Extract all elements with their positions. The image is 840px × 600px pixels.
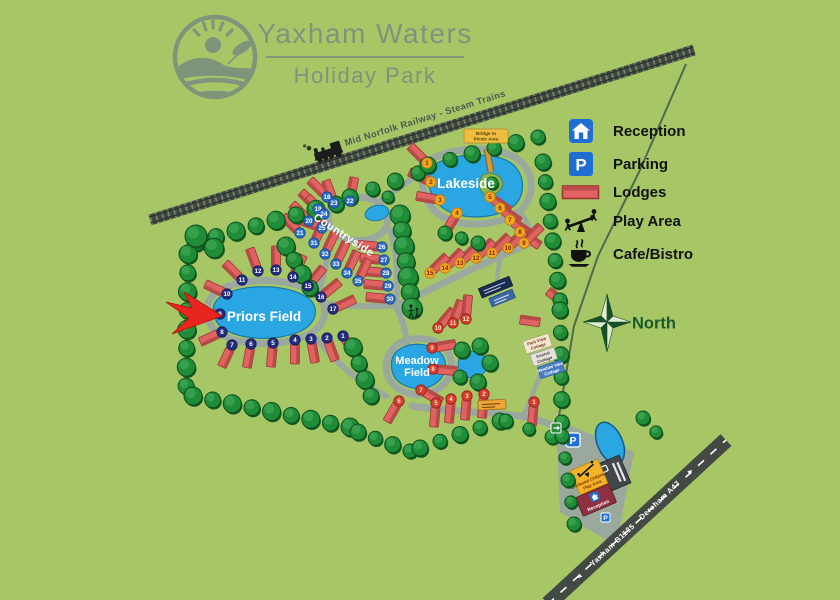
tree-icon [543,214,558,230]
lodge-marker-priors-6: 6 [246,339,256,349]
svg-text:16: 16 [318,294,325,301]
map-legend: Reception P Parking Lodges [560,112,780,282]
reception-icon [560,118,602,144]
lodge-meadow-3 [460,400,471,421]
tree-icon [263,403,282,423]
lodge-marker-priors-5: 5 [268,338,278,348]
svg-text:7: 7 [508,217,512,224]
tree-icon [223,395,242,415]
svg-text:34: 34 [344,270,351,277]
road-label-east: Dereham A47 ► [637,465,696,521]
legend-label-reception: Reception [613,123,686,140]
svg-text:10: 10 [224,291,231,298]
title-divider [266,56,464,58]
tree-icon [356,371,375,391]
svg-text:3: 3 [309,336,313,343]
area-label-meadow-line1: Meadow [395,355,439,367]
holiday-park-map-page: Mid Norfolk Railway - Steam Trains [0,0,840,600]
svg-text:11: 11 [450,320,457,327]
lodge-marker-priors-13: 13 [271,265,281,275]
lodge-marker-meadow-12: 12 [461,314,471,324]
legend-label-lodges: Lodges [613,184,666,201]
svg-text:14: 14 [442,265,449,272]
tree-icon [455,232,469,246]
tree-icon [344,338,363,358]
tree-icon [452,427,469,445]
tree-icon [554,392,571,410]
legend-label-parking: Parking [613,156,668,173]
lodge-marker-meadow-5: 5 [431,398,441,408]
lodge-marker-meadow-2: 2 [479,389,489,399]
svg-text:P: P [575,156,586,175]
lodge-marker-priors-10: 10 [222,289,232,299]
lodge-marker-countryside-33: 33 [331,259,341,269]
svg-text:11: 11 [239,277,246,284]
tree-icon [184,387,203,407]
legend-row-reception: Reception [560,118,686,144]
svg-text:7: 7 [419,387,423,394]
svg-text:13: 13 [273,267,280,274]
legend-label-play-area: Play Area [613,213,681,230]
svg-text:26: 26 [379,244,386,251]
bridge-sign: Bridge to Picnic Area [464,129,508,143]
svg-text:8: 8 [518,229,522,236]
lodge-marker-meadow-3: 3 [462,391,472,401]
tree-icon [540,193,557,211]
lodge-marker-priors-2: 2 [322,333,332,343]
tree-icon [553,325,568,341]
park-map-canvas: Mid Norfolk Railway - Steam Trains [0,0,840,600]
tree-icon [244,400,261,418]
lodge-meadow-12 [462,295,473,316]
legend-row-play-area: Play Area [560,208,681,235]
svg-text:2: 2 [482,391,486,398]
tree-icon [385,437,402,455]
cafe-icon [560,239,602,269]
lodge-marker-countryside-26: 26 [377,242,387,252]
svg-text:27: 27 [381,257,388,264]
lodge-marker-countryside-21: 21 [295,228,305,238]
lodge-marker-lakeside-8: 8 [515,227,525,237]
tree-icon [552,302,569,320]
svg-text:17: 17 [330,306,337,313]
parking-icon-small: P [601,513,610,522]
legend-row-cafe: Cafe/Bistro [560,239,693,269]
legend-row-lodges: Lodges [560,184,666,201]
lodge-marker-meadow-9: 9 [427,343,437,353]
lodge-marker-priors-7: 7 [227,340,237,350]
lodge-marker-meadow-4: 4 [446,394,456,404]
lodge-marker-countryside-27: 27 [379,255,389,265]
svg-text:8: 8 [220,329,224,336]
svg-text:21: 21 [297,230,304,237]
svg-text:14: 14 [290,274,297,281]
svg-text:22: 22 [347,198,354,205]
lodge-marker-priors-4: 4 [290,335,300,345]
legend-label-cafe: Cafe/Bistro [613,246,693,263]
lodge-marker-lakeside-15: 15 [425,268,435,278]
lodge-marker-lakeside-12: 12 [471,253,481,263]
svg-text:11: 11 [489,250,496,257]
lodge [519,315,540,327]
legend-row-parking: P Parking [560,151,668,177]
lodge-meadow-4 [444,403,455,424]
svg-text:12: 12 [473,255,480,262]
svg-text:35: 35 [355,278,362,285]
lodge-priors-3 [307,342,319,363]
lodge-countryside-30 [366,292,387,303]
tree-icon [538,175,553,191]
svg-text:3: 3 [438,197,442,204]
svg-text:6: 6 [397,398,401,405]
sun-icon [205,37,221,53]
tree-icon [636,411,651,427]
compass-label: North [632,315,676,333]
lodge-countryside-29 [364,279,385,290]
lodge-marker-priors-1: 1 [338,331,348,341]
svg-text:28: 28 [383,270,390,277]
tree-icon [535,154,552,172]
lodge-marker-priors-16: 16 [316,292,326,302]
lodge-marker-lakeside-3: 3 [435,195,445,205]
svg-text:12: 12 [463,316,470,323]
lodge-marker-countryside-32: 32 [320,249,330,259]
svg-text:33: 33 [333,261,340,268]
lodge-marker-countryside-28: 28 [381,268,391,278]
tree-icon [322,415,339,433]
svg-text:1: 1 [425,160,429,167]
lodge-marker-priors-17: 17 [328,304,338,314]
facilities-signboards [478,276,517,309]
svg-text:10: 10 [435,325,442,332]
lodge-marker-countryside-35: 35 [353,276,363,286]
svg-text:4: 4 [449,396,453,403]
lodge-marker-lakeside-4: 4 [452,208,462,218]
lodge-priors-4 [291,344,300,364]
lodge-marker-meadow-10: 10 [433,323,443,333]
lodge-marker-countryside-22: 22 [345,196,355,206]
tree-icon [433,434,448,450]
lodge-marker-lakeside-6: 6 [495,203,505,213]
tree-icon [204,238,225,259]
logo-art [174,21,256,100]
lodge-marker-lakeside-5: 5 [485,192,495,202]
svg-text:1: 1 [532,399,536,406]
lodge-marker-lakeside-13: 13 [455,258,465,268]
svg-text:32: 32 [322,251,329,258]
park-title: Yaxham Waters [252,18,478,50]
park-subtitle: Holiday Park [252,63,478,89]
svg-text:13: 13 [457,260,464,267]
tree-icon [227,222,246,242]
compass-star-icon [583,294,631,352]
lodge-marker-lakeside-1: 1 [422,158,432,168]
svg-text:5: 5 [271,340,275,347]
svg-text:31: 31 [311,240,318,247]
park-title-block: Yaxham Waters Holiday Park [252,18,478,89]
tree-icon [180,265,197,283]
svg-text:Bridge to: Bridge to [476,131,496,136]
svg-text:15: 15 [427,270,434,277]
lodge-marker-countryside-34: 34 [342,268,352,278]
lodge-marker-meadow-7: 7 [416,385,426,395]
lodge-marker-lakeside-2: 2 [426,177,436,187]
lodge-marker-lakeside-11: 11 [487,248,497,258]
north-compass: North [583,294,676,352]
svg-text:2: 2 [325,335,329,342]
svg-text:6: 6 [249,341,253,348]
lodge-marker-lakeside-7: 7 [505,215,515,225]
lodge-marker-priors-11: 11 [237,275,247,285]
lodge-marker-lakeside-9: 9 [519,238,529,248]
svg-text:1: 1 [341,333,345,340]
svg-text:10: 10 [505,245,512,252]
svg-text:23: 23 [331,200,338,207]
svg-text:3: 3 [465,393,469,400]
svg-text:4: 4 [455,210,459,217]
tree-icon [179,340,196,358]
lodge-meadow-5 [429,407,440,428]
tree-icon [650,426,664,440]
lodge-icon [560,184,602,201]
footpath-arrow-sign [551,423,561,433]
lodge-marker-meadow-1: 1 [529,397,539,407]
lodge-marker-priors-15: 15 [303,281,313,291]
tree-icon [454,342,471,360]
lodge-priors-6 [242,347,254,368]
lodge-marker-countryside-30: 30 [385,294,395,304]
area-label-meadow-line2: Field [404,367,430,379]
lodge-marker-countryside-23: 23 [329,198,339,208]
svg-text:2: 2 [429,179,433,186]
svg-text:6: 6 [498,205,502,212]
lodge-priors-5 [266,347,277,368]
tree-icon [508,135,525,153]
tree-icon [267,211,286,231]
svg-text:9: 9 [430,345,434,352]
lodge-marker-countryside-31: 31 [309,238,319,248]
tree-icon [350,424,367,442]
lodge-marker-priors-3: 3 [306,334,316,344]
tree-icon [473,421,488,437]
svg-text:5: 5 [488,194,492,201]
lodge-marker-lakeside-14: 14 [440,263,450,273]
lodge-marker-meadow-6: 6 [394,396,404,406]
svg-text:4: 4 [293,337,297,344]
area-label-priors-field: Priors Field [227,309,301,324]
lodge-marker-priors-14: 14 [288,272,298,282]
svg-text:P: P [569,435,576,447]
logo-circle [175,17,255,97]
lodge-marker-countryside-29: 29 [383,281,393,291]
svg-text:P: P [603,515,608,522]
play-area-icon [560,208,602,235]
tree-icon [387,173,404,191]
svg-text:7: 7 [230,342,234,349]
svg-text:9: 9 [522,240,526,247]
tree-icon [531,130,546,146]
svg-text:29: 29 [385,283,392,290]
tree-icon [177,358,196,378]
tree-icon [205,392,222,410]
tree-icon [368,431,383,447]
svg-text:12: 12 [255,268,262,275]
tree-icon [283,407,300,425]
svg-text:8: 8 [431,366,435,373]
lodge-marker-lakeside-10: 10 [503,243,513,253]
svg-text:Dereham A47: Dereham A47 [637,479,682,522]
lodge-marker-priors-8: 8 [217,327,227,337]
svg-text:30: 30 [387,296,394,303]
area-label-lakeside: Lakeside [437,176,495,191]
lodge-marker-priors-12: 12 [253,266,263,276]
lodge-marker-meadow-11: 11 [448,318,458,328]
parking-icon: P [560,151,602,177]
svg-text:15: 15 [305,283,312,290]
tree-icon [302,410,321,430]
info-sign [478,399,506,410]
tree-icon [248,218,265,236]
svg-text:5: 5 [434,400,438,407]
svg-text:Picnic Area: Picnic Area [474,137,499,142]
